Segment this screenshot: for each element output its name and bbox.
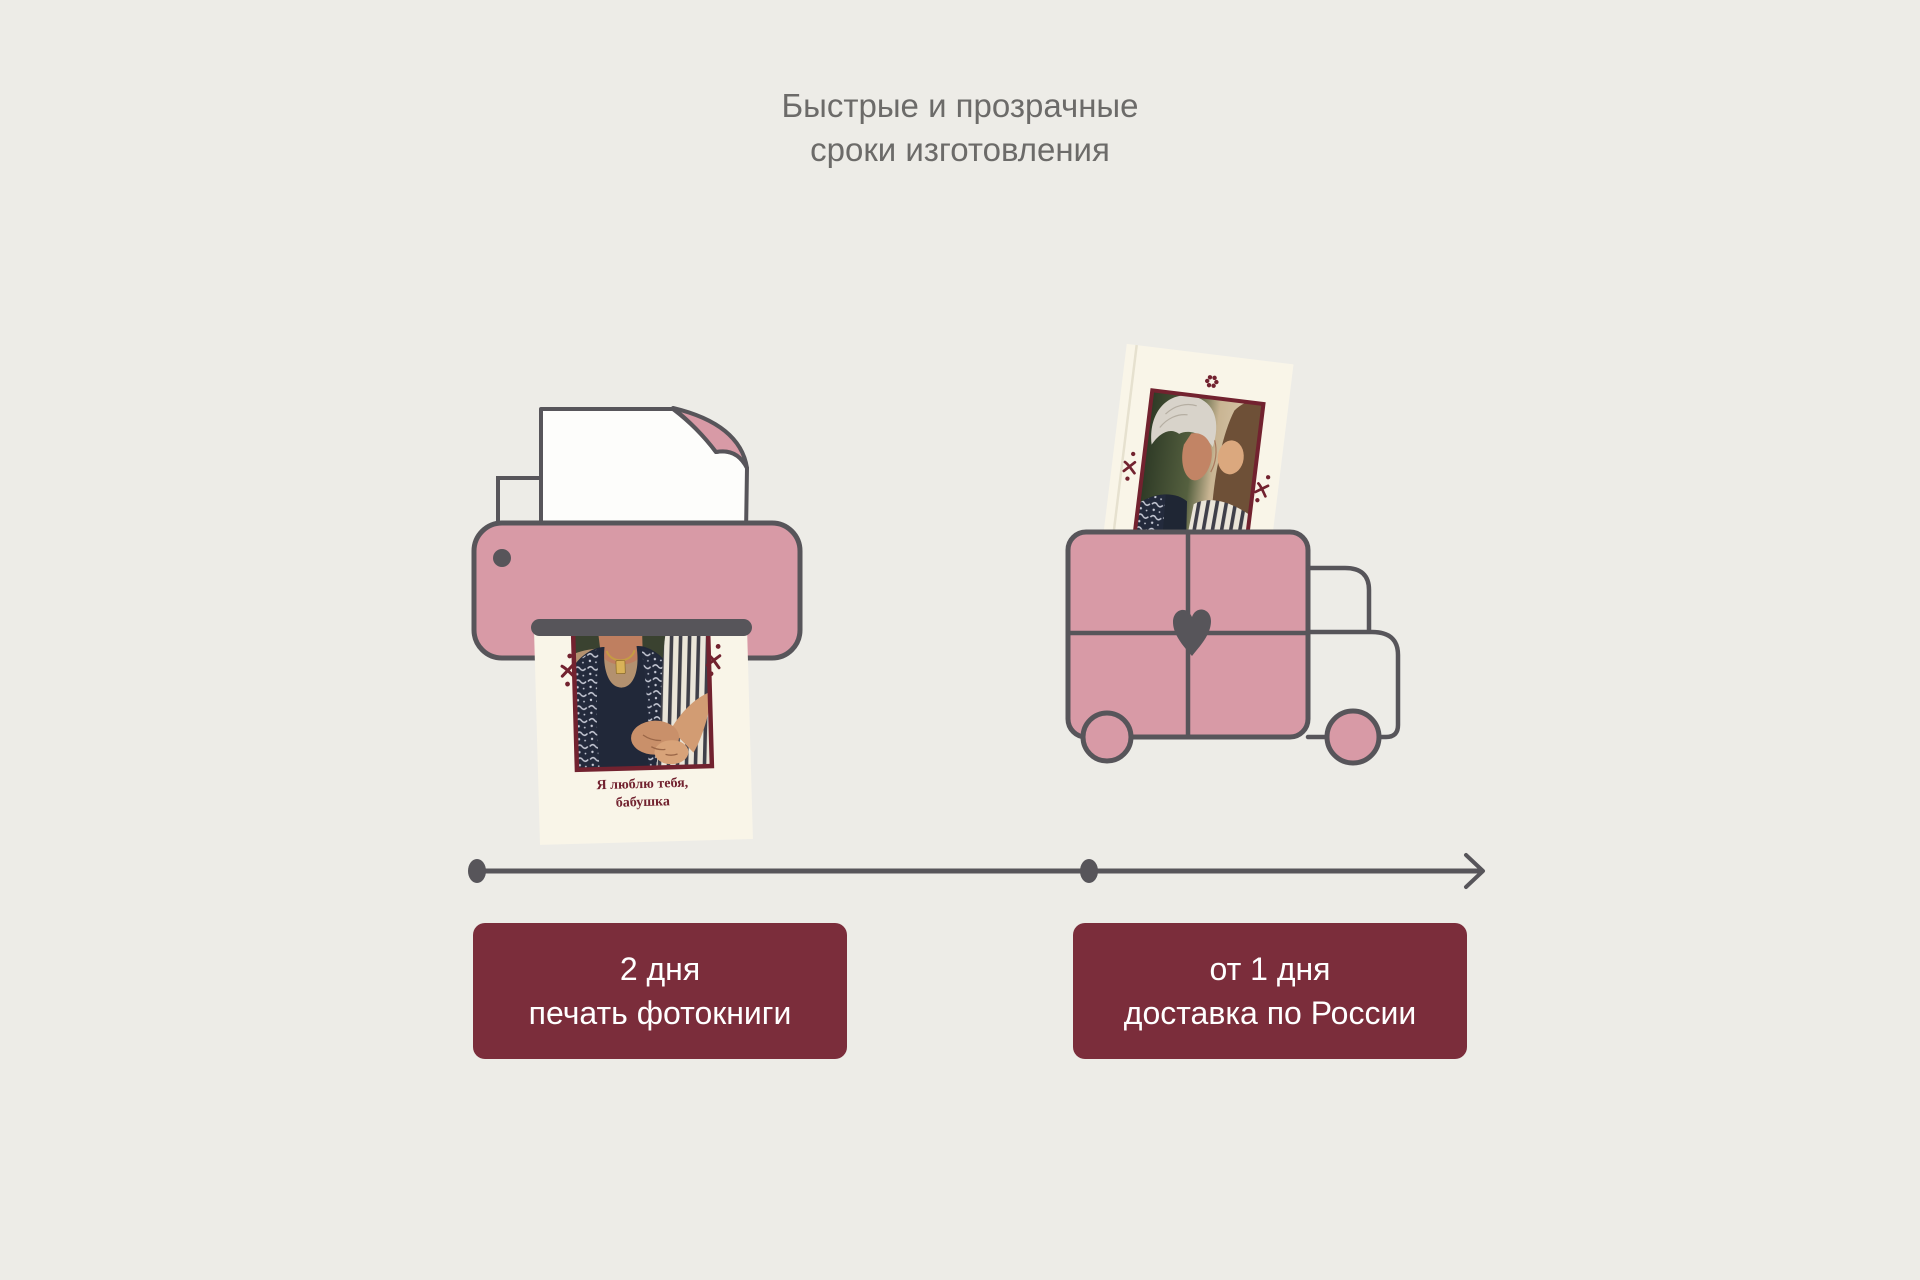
illustrations-canvas: Я люблю тебя, бабушка <box>0 0 1920 1280</box>
timeline-dot-start <box>468 859 486 883</box>
page-caption-line-1: Я люблю тебя, <box>596 776 688 794</box>
production-times-infographic: Быстрые и прозрачные сроки изготовления <box>0 0 1920 1280</box>
photo-pendant <box>616 660 625 673</box>
printer-illustration: Я люблю тебя, бабушка <box>474 408 800 845</box>
timeline <box>468 855 1483 887</box>
photobook-page: Я люблю тебя, бабушка <box>534 623 753 845</box>
page-photo-grandma-hands <box>573 629 712 771</box>
page-caption-line-2: бабушка <box>616 794 671 811</box>
step-duration: 2 дня <box>620 947 700 991</box>
truck-wheel-front <box>1327 711 1379 763</box>
printer-output-slot <box>531 619 752 636</box>
step-duration: от 1 дня <box>1210 947 1331 991</box>
truck-wheel-rear <box>1083 713 1131 761</box>
delivery-truck-illustration <box>1068 344 1398 763</box>
step-label: печать фотокниги <box>529 991 792 1035</box>
printer-indicator-dot <box>493 549 511 567</box>
book-cover-photo <box>1134 388 1263 548</box>
step-label: доставка по России <box>1124 991 1416 1035</box>
timeline-dot-middle <box>1080 859 1098 883</box>
step-badge-printing: 2 дня печать фотокниги <box>473 923 847 1059</box>
step-badge-delivery: от 1 дня доставка по России <box>1073 923 1467 1059</box>
